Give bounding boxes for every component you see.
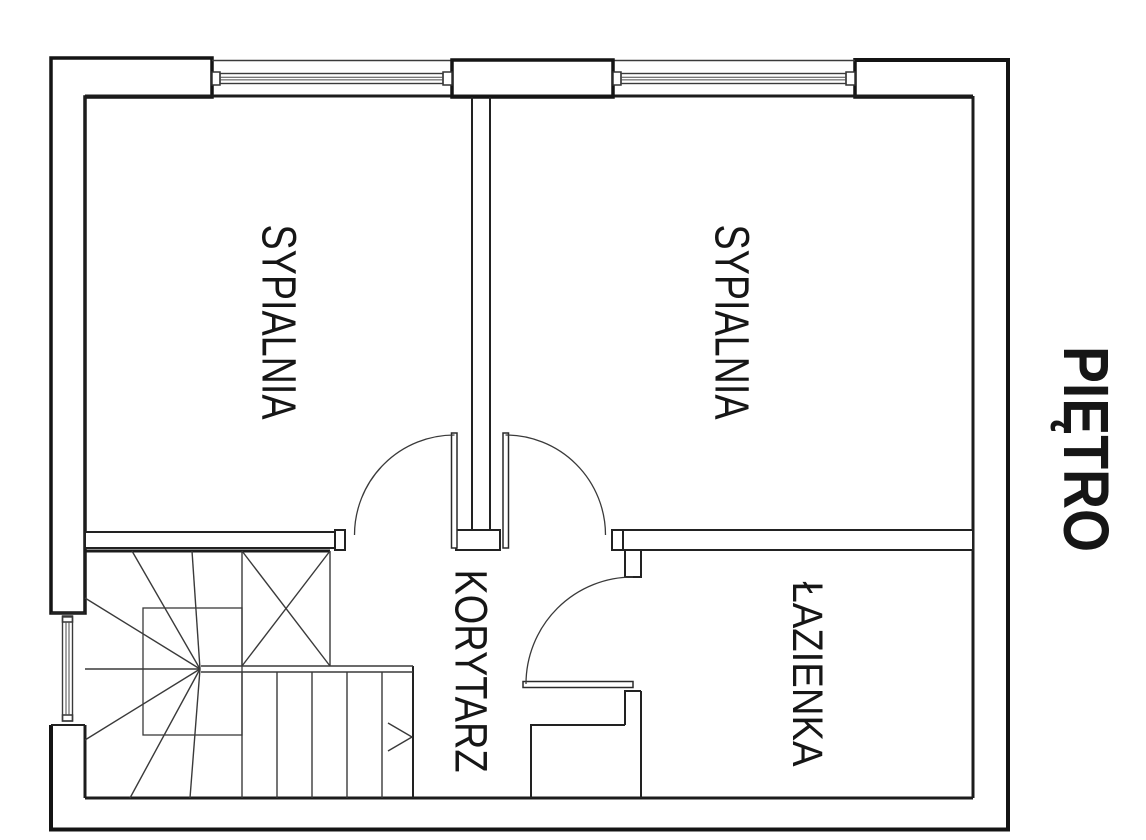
interior-walls [85, 97, 973, 798]
top-window-right [613, 72, 855, 85]
room-label-sypialnia-1: SYPIALNIA [252, 225, 305, 420]
floor-plan-drawing: SYPIALNIA SYPIALNIA KORYTARZ ŁAZIENKA PI… [0, 0, 1146, 840]
door-leaf [452, 433, 458, 548]
wall-partition-foot [456, 530, 500, 550]
window-cap [443, 72, 452, 85]
wall-bedroom2-door-jamb [612, 530, 623, 550]
wall-bedroom1-bottom-cap [335, 530, 345, 550]
winder-tread [130, 669, 200, 798]
floor-title-pietro: PIĘTRO [1050, 346, 1122, 552]
arrow-stroke [388, 737, 412, 751]
door-swing-arc [355, 435, 455, 535]
room-label-lazienka: ŁAZIENKA [783, 582, 831, 767]
bedroom-1-door [355, 433, 458, 548]
wall-bathroom-door-jamb [625, 550, 641, 577]
wall-corner-top-left [51, 58, 212, 613]
stair-void-x-box [242, 551, 330, 666]
window-cap [63, 715, 73, 721]
window-frame [220, 74, 443, 84]
bedroom-2-door [503, 433, 606, 548]
side-window-left [51, 613, 85, 725]
stairs-direction-arrow [388, 723, 412, 751]
door-leaf [523, 682, 633, 688]
window-cap [613, 72, 621, 85]
arrow-stroke [388, 723, 412, 737]
winder-tread [192, 551, 200, 669]
winder-tread [132, 551, 200, 669]
wall-bedroom1-bottom [85, 532, 335, 548]
door-leaf [503, 433, 509, 548]
room-label-korytarz: KORYTARZ [446, 570, 497, 773]
floor-plan-page: SYPIALNIA SYPIALNIA KORYTARZ ŁAZIENKA PI… [0, 0, 1146, 840]
window-frame [621, 74, 846, 84]
bathroom-door [523, 577, 633, 688]
wall-pier-between-windows [452, 60, 613, 97]
window-cap [846, 72, 855, 85]
window-frame [63, 617, 73, 721]
outer-walls [49, 58, 1010, 831]
winder-tread [190, 669, 200, 798]
wall-bathroom-top [623, 530, 973, 550]
staircase [85, 551, 413, 798]
door-swing-arc [526, 577, 633, 684]
door-swing-arc [506, 435, 606, 535]
top-window-left [212, 72, 452, 85]
stair-treads-straight [242, 672, 382, 798]
window-cap [212, 72, 220, 85]
wall-bathroom-west [531, 691, 641, 798]
room-label-sypialnia-2: SYPIALNIA [705, 225, 758, 420]
wall-corner-top-right [855, 58, 973, 97]
